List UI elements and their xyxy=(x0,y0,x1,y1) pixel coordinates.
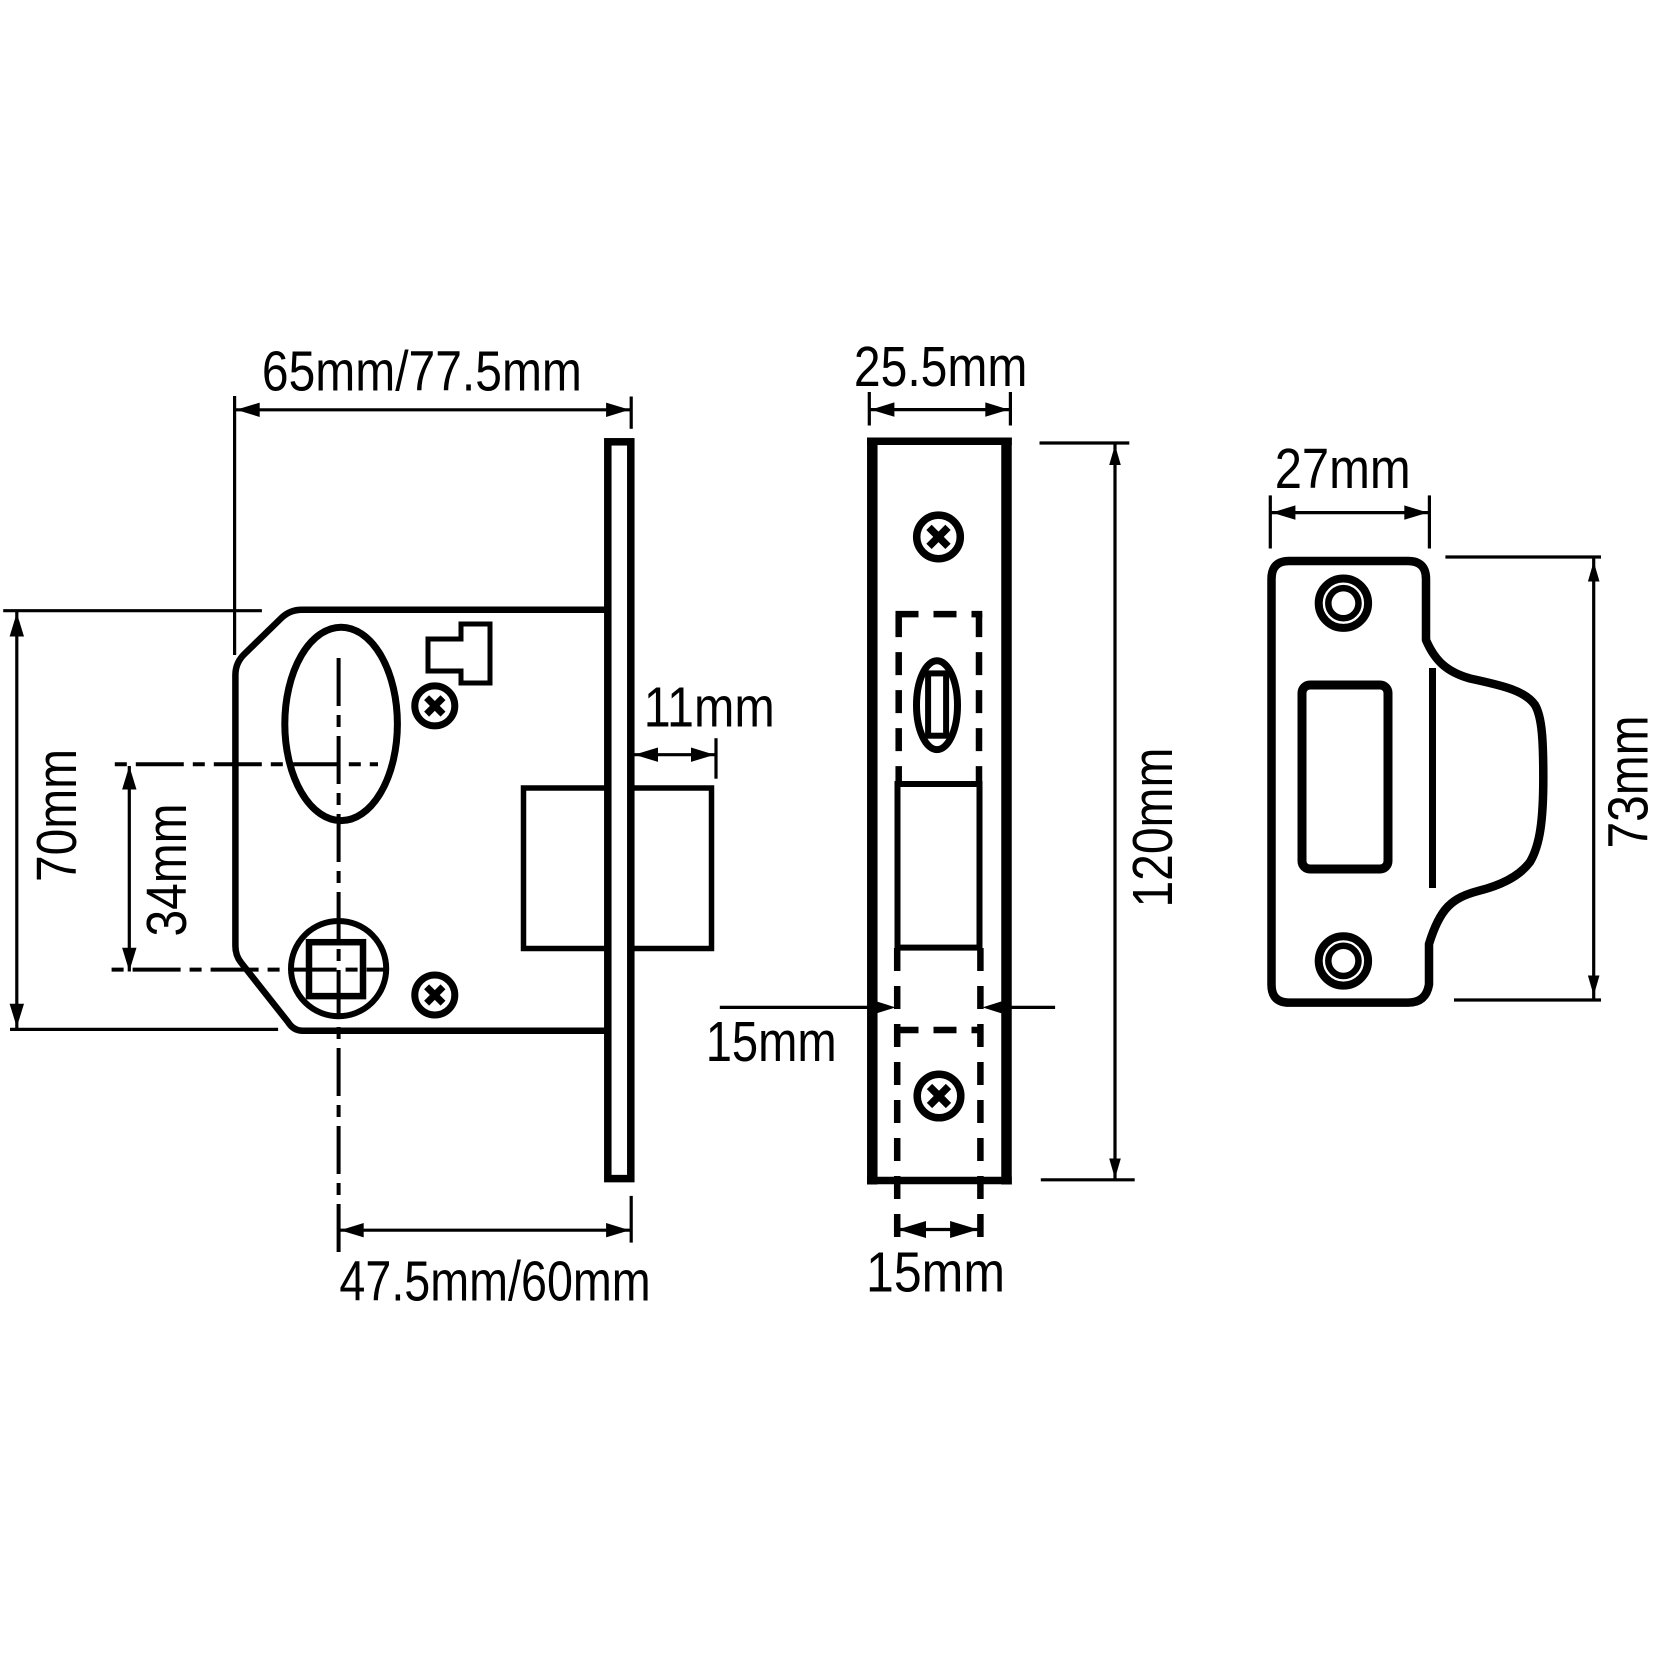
svg-text:120mm: 120mm xyxy=(1121,748,1185,908)
svg-text:25.5mm: 25.5mm xyxy=(854,335,1028,399)
svg-text:11mm: 11mm xyxy=(644,675,775,739)
svg-text:27mm: 27mm xyxy=(1275,437,1411,501)
svg-text:15mm: 15mm xyxy=(866,1241,1005,1305)
svg-text:34mm: 34mm xyxy=(135,804,199,937)
svg-text:15mm: 15mm xyxy=(706,1010,837,1074)
svg-text:47.5mm/60mm: 47.5mm/60mm xyxy=(339,1249,650,1313)
svg-text:65mm/77.5mm: 65mm/77.5mm xyxy=(262,339,582,403)
svg-text:73mm: 73mm xyxy=(1597,716,1661,849)
svg-text:70mm: 70mm xyxy=(25,749,89,882)
